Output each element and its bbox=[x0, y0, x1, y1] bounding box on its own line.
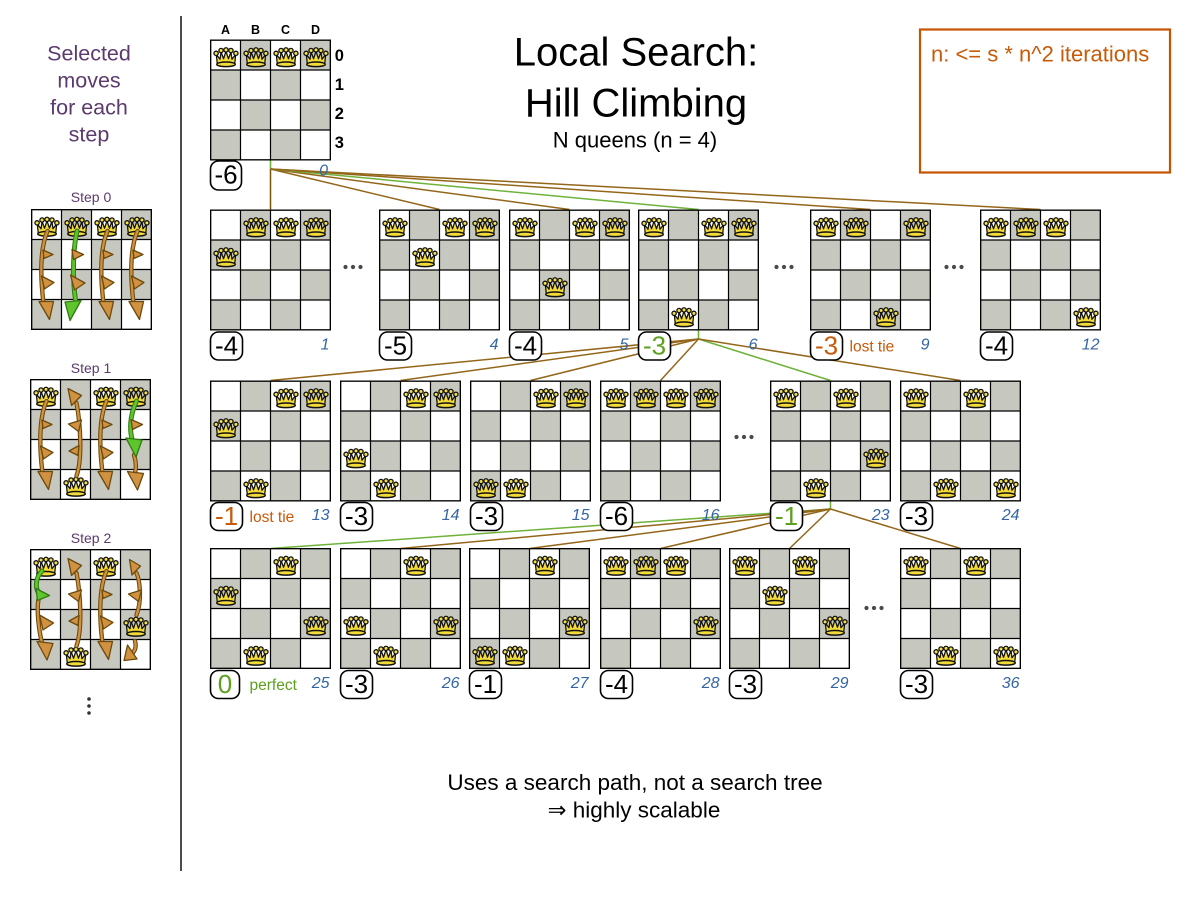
svg-text:Step 1: Step 1 bbox=[71, 360, 112, 376]
svg-text:Hill Climbing: Hill Climbing bbox=[525, 82, 747, 126]
svg-text:5: 5 bbox=[620, 337, 629, 354]
svg-text:A: A bbox=[221, 23, 230, 37]
svg-text:-3: -3 bbox=[643, 331, 666, 361]
svg-text:25: 25 bbox=[311, 675, 330, 692]
svg-text:0: 0 bbox=[335, 47, 344, 65]
svg-text:Step 0: Step 0 bbox=[71, 189, 112, 205]
svg-text:14: 14 bbox=[442, 507, 460, 524]
svg-text:36: 36 bbox=[1002, 675, 1020, 692]
svg-text:27: 27 bbox=[570, 675, 590, 692]
svg-text:29: 29 bbox=[830, 675, 849, 692]
svg-text:13: 13 bbox=[312, 507, 330, 524]
svg-text:4: 4 bbox=[490, 337, 499, 354]
svg-text:-5: -5 bbox=[384, 331, 407, 361]
svg-text:23: 23 bbox=[871, 507, 890, 524]
svg-text:2: 2 bbox=[335, 105, 344, 123]
svg-text:-3: -3 bbox=[905, 669, 928, 699]
svg-text:-6: -6 bbox=[214, 160, 237, 190]
svg-text:for each: for each bbox=[50, 96, 128, 120]
svg-text:26: 26 bbox=[441, 675, 460, 692]
svg-text:-3: -3 bbox=[905, 501, 928, 531]
svg-text:1: 1 bbox=[335, 76, 344, 94]
svg-text:9: 9 bbox=[921, 337, 930, 354]
svg-text:lost tie: lost tie bbox=[850, 339, 895, 356]
svg-text:6: 6 bbox=[749, 337, 758, 354]
svg-text:lost tie: lost tie bbox=[250, 509, 295, 526]
svg-text:step: step bbox=[69, 123, 110, 147]
svg-text:-3: -3 bbox=[345, 501, 368, 531]
svg-text:-4: -4 bbox=[514, 331, 537, 361]
svg-text:Local Search:: Local Search: bbox=[514, 31, 759, 75]
svg-text:16: 16 bbox=[702, 507, 720, 524]
svg-text:B: B bbox=[251, 23, 260, 37]
svg-text:⇒ highly scalable: ⇒ highly scalable bbox=[548, 798, 721, 823]
svg-text:-4: -4 bbox=[985, 331, 1008, 361]
svg-text:-3: -3 bbox=[345, 669, 368, 699]
svg-text:-6: -6 bbox=[605, 501, 628, 531]
svg-text:0: 0 bbox=[218, 669, 232, 699]
svg-text:-3: -3 bbox=[734, 669, 757, 699]
svg-text:0: 0 bbox=[319, 163, 328, 180]
svg-text:12: 12 bbox=[1082, 337, 1100, 354]
svg-text:-4: -4 bbox=[605, 669, 628, 699]
svg-text:15: 15 bbox=[572, 507, 590, 524]
svg-text:moves: moves bbox=[57, 69, 120, 93]
svg-text:3: 3 bbox=[335, 134, 344, 152]
svg-text:Step 2: Step 2 bbox=[71, 530, 112, 546]
svg-text:-1: -1 bbox=[474, 669, 497, 699]
svg-text:-3: -3 bbox=[475, 501, 498, 531]
svg-text:-1: -1 bbox=[775, 501, 798, 531]
svg-text:perfect: perfect bbox=[250, 677, 298, 694]
svg-text:28: 28 bbox=[701, 675, 720, 692]
svg-text:-1: -1 bbox=[215, 501, 238, 531]
svg-text:Selected: Selected bbox=[47, 42, 131, 66]
svg-text:C: C bbox=[281, 23, 290, 37]
svg-text:D: D bbox=[311, 23, 320, 37]
svg-text:-4: -4 bbox=[215, 331, 238, 361]
svg-text:N queens (n = 4): N queens (n = 4) bbox=[553, 128, 717, 153]
svg-text:n: <= s * n^2 iterations: n: <= s * n^2 iterations bbox=[931, 42, 1149, 67]
svg-text:1: 1 bbox=[321, 337, 330, 354]
svg-text:-3: -3 bbox=[815, 331, 838, 361]
svg-text:24: 24 bbox=[1001, 507, 1020, 524]
svg-text:Uses a search path, not a sear: Uses a search path, not a search tree bbox=[447, 770, 822, 795]
